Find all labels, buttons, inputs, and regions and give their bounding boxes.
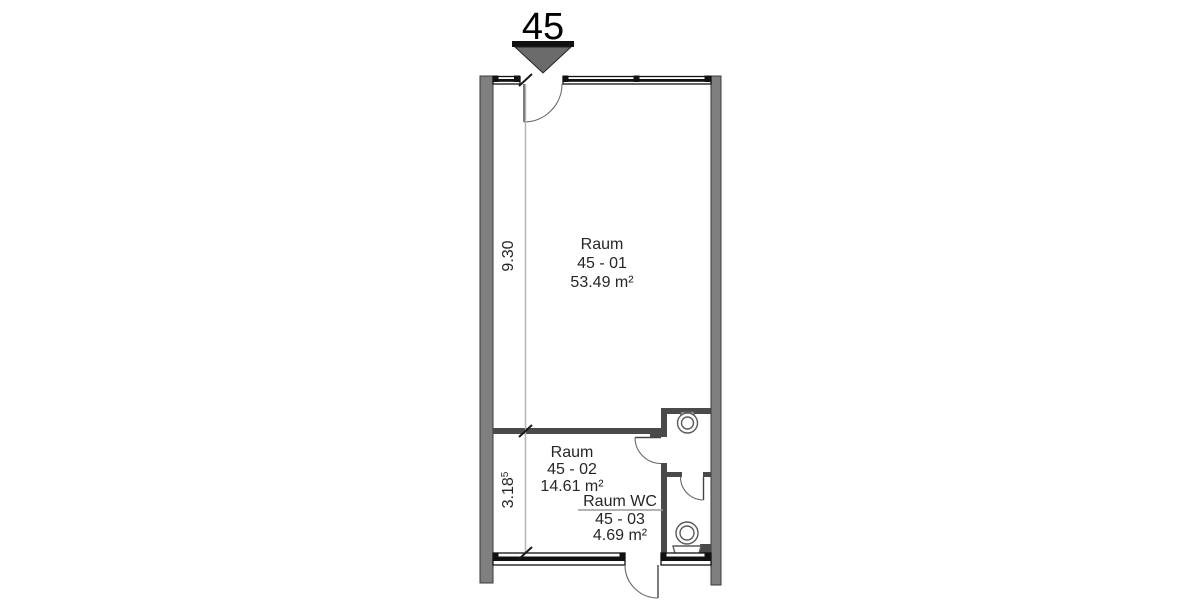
dimension-value: 3.18 [500,477,517,508]
wc-number: 45 - 03 [595,511,645,528]
toilet-bowl-inner [680,526,694,540]
mullion-square [493,553,499,559]
room1-label: Raum 45 - 01 53.49 m² [570,236,634,291]
window-band-bottom-right [661,553,712,566]
wc-inner-door-swing-arc [681,477,704,500]
room2-name: Raum [551,444,594,461]
wc-divider-wall-left [667,472,682,477]
room1-name: Raum [581,236,624,253]
window-band-bottom-left [493,553,626,566]
mullion-square [705,76,711,83]
mullion-square [661,553,667,559]
entrance-marker-bar [512,41,574,47]
wc-entry-door-swing-arc [635,438,661,464]
window-glazing [661,557,711,562]
sink-bowl-inner [682,417,694,429]
interior-wall-room-divider [493,428,652,434]
window-band-top-left [493,76,521,85]
mullion-square [705,553,711,559]
dimension-label-room2-depth: 3.185 [500,471,517,508]
room2-number: 45 - 02 [547,461,597,478]
toilet-icon [673,522,701,557]
mullion-square [620,553,626,559]
floor-plan-drawing: 45 [0,0,1200,600]
exterior-wall-right [711,76,721,585]
window-glazing [493,557,625,562]
dimension-superscript: 5 [500,471,511,477]
mullion-square [634,76,640,83]
entrance-marker-triangle [515,47,571,73]
exterior-wall-left [480,76,493,583]
wc-area: 4.69 m² [593,527,648,544]
wc-wall-left-lower [661,463,667,555]
wc-label: Raum WC 45 - 03 4.69 m² [578,493,663,544]
wc-name: Raum WC [583,493,657,510]
mullion-square [563,76,569,83]
entrance-door-swing-arc [524,84,562,122]
room1-number: 45 - 01 [577,255,627,272]
dimension-label-room1-depth: 9.30 [500,240,517,271]
interior-wall-stub [650,428,661,438]
room2-label: Raum 45 - 02 14.61 m² [540,444,604,495]
room1-area: 53.49 m² [570,274,634,291]
window-band-top-right [563,76,712,85]
bottom-door-swing-arc [625,565,658,598]
sink-icon [678,412,698,433]
mullion-square [493,76,499,83]
wc-wall-left-upper [661,408,667,437]
wc-divider-wall-right [703,472,711,477]
mullion-square [514,76,520,83]
floor-plan-page: 45 [0,0,1200,600]
